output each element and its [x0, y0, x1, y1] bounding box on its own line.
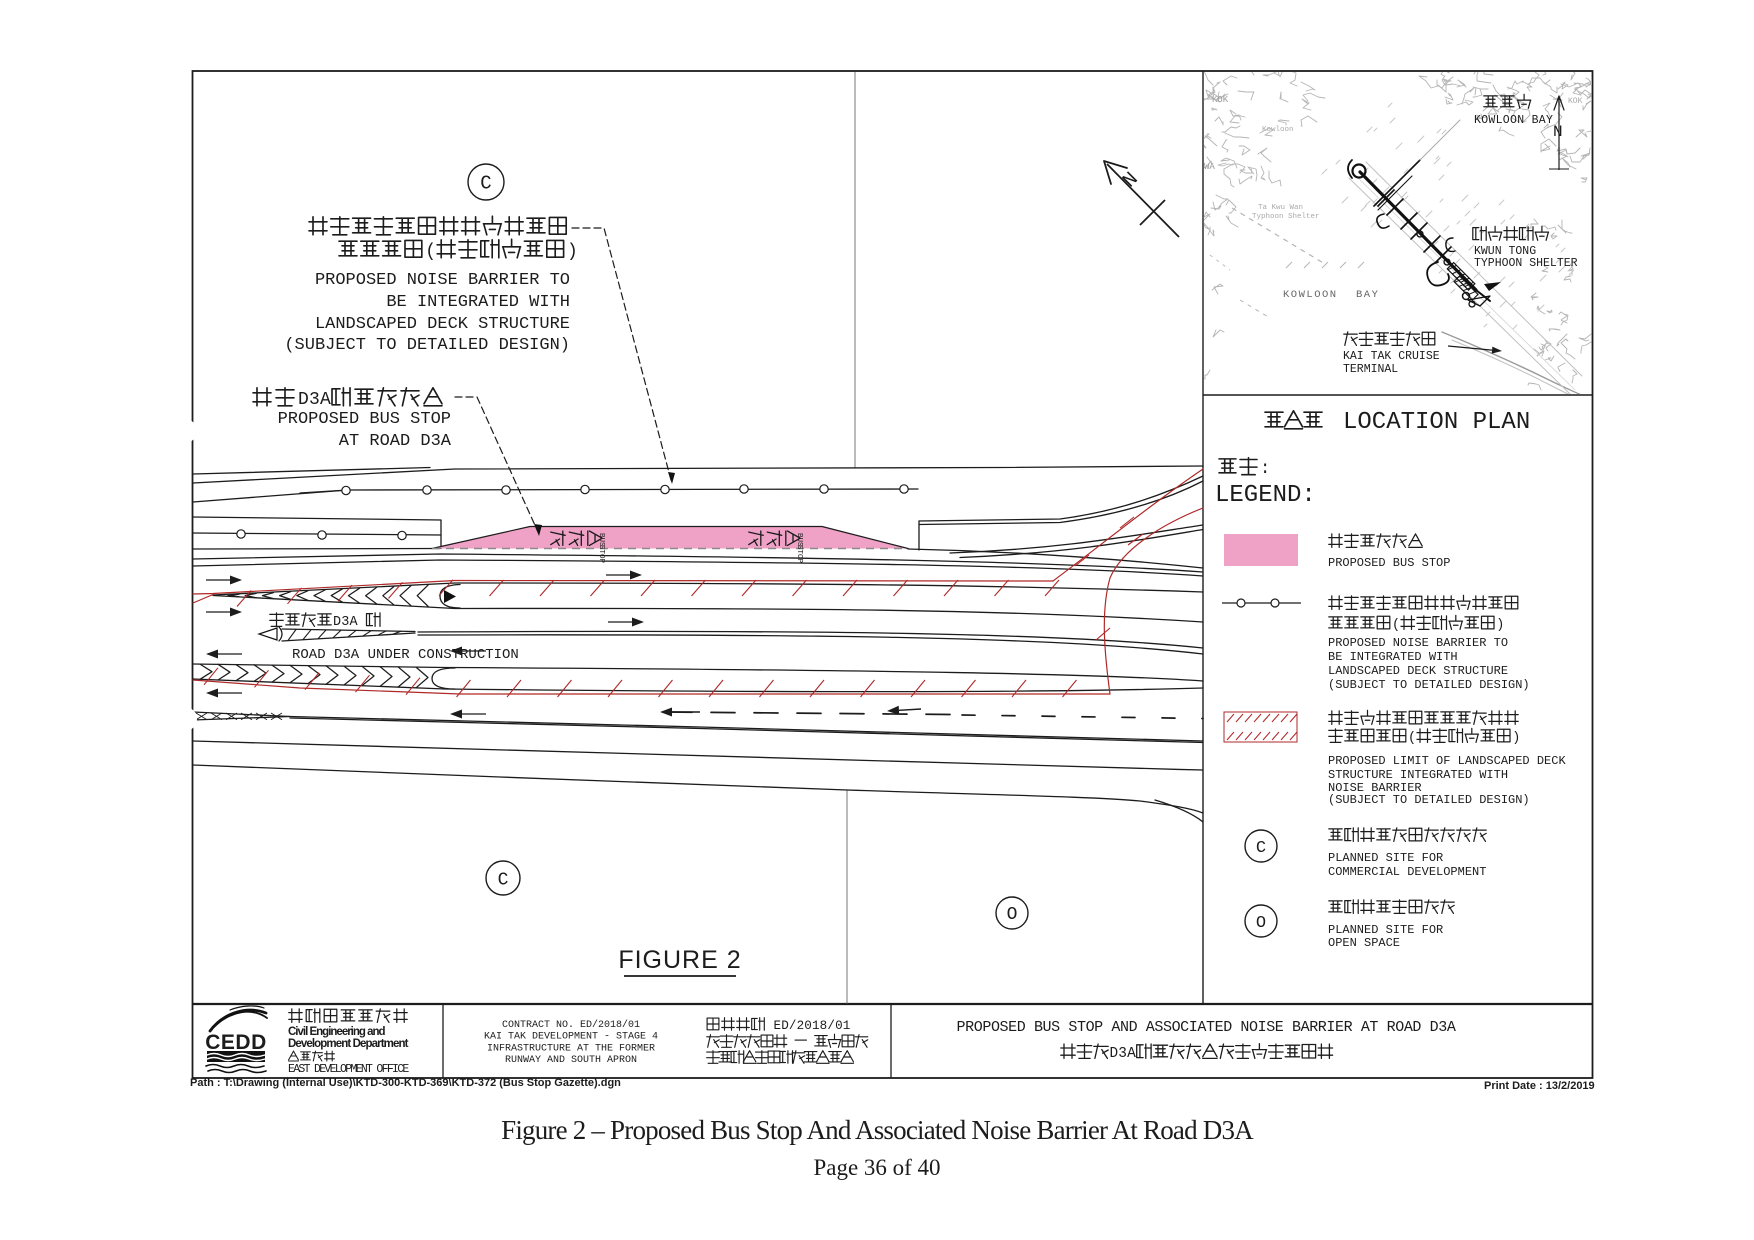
- svg-text:CONTRACT NO. ED/2018/01: CONTRACT NO. ED/2018/01: [502, 1019, 640, 1031]
- svg-text:KOK: KOK: [1212, 95, 1229, 105]
- svg-text:Kowloon: Kowloon: [1262, 126, 1294, 134]
- svg-text:STOP: STOP: [795, 545, 803, 564]
- svg-text:TYPHOON SHELTER: TYPHOON SHELTER: [1474, 257, 1578, 270]
- svg-text:): ): [1512, 731, 1520, 746]
- svg-text:PROPOSED BUS STOP: PROPOSED BUS STOP: [278, 410, 451, 429]
- svg-text:WA: WA: [1204, 162, 1215, 172]
- svg-text:KOWLOON BAY: KOWLOON BAY: [1474, 114, 1553, 127]
- svg-text:N: N: [1553, 123, 1563, 141]
- svg-text:PROPOSED BUS STOP: PROPOSED BUS STOP: [1328, 556, 1450, 570]
- svg-text:C: C: [1256, 839, 1266, 858]
- svg-text:Path : T:\Drawing (Internal Us: Path : T:\Drawing (Internal Use)\KTD-300…: [190, 1077, 621, 1089]
- svg-text:COMMERCIAL DEVELOPMENT: COMMERCIAL DEVELOPMENT: [1328, 865, 1486, 879]
- svg-text:(: (: [425, 242, 436, 262]
- svg-text:(: (: [1408, 731, 1416, 746]
- svg-text:N: N: [1119, 168, 1144, 193]
- svg-text:C: C: [480, 173, 491, 195]
- svg-text:): ): [567, 242, 578, 262]
- svg-text:(: (: [1392, 618, 1400, 633]
- svg-text:): ): [1496, 618, 1504, 633]
- svg-text:C: C: [498, 871, 509, 891]
- svg-text:LOCATION PLAN: LOCATION PLAN: [1343, 409, 1530, 436]
- svg-text:LANDSCAPED DECK STRUCTURE: LANDSCAPED DECK STRUCTURE: [1328, 664, 1508, 678]
- svg-text:(SUBJECT TO DETAILED DESIGN): (SUBJECT TO DETAILED DESIGN): [284, 336, 570, 355]
- svg-text:TERMINAL: TERMINAL: [1343, 363, 1398, 376]
- svg-text:(SUBJECT TO DETAILED DESIGN): (SUBJECT TO DETAILED DESIGN): [1328, 678, 1530, 692]
- svg-text:D3A: D3A: [298, 390, 331, 410]
- svg-text:LANDSCAPED DECK STRUCTURE: LANDSCAPED DECK STRUCTURE: [315, 315, 570, 334]
- svg-text:Print Date : 13/2/2019: Print Date : 13/2/2019: [1484, 1080, 1595, 1092]
- svg-text:O: O: [1256, 914, 1266, 933]
- svg-text:BAY: BAY: [1356, 289, 1379, 301]
- svg-text:PLANNED SITE FOR: PLANNED SITE FOR: [1328, 923, 1443, 937]
- svg-text:STOP: STOP: [597, 545, 605, 564]
- svg-text:BE INTEGRATED WITH: BE INTEGRATED WITH: [386, 293, 570, 312]
- svg-text:Development Department: Development Department: [288, 1038, 409, 1050]
- svg-text:STRUCTURE INTEGRATED WITH: STRUCTURE INTEGRATED WITH: [1328, 768, 1508, 782]
- svg-text:KOK: KOK: [1568, 97, 1583, 106]
- svg-text:PROPOSED NOISE BARRIER TO: PROPOSED NOISE BARRIER TO: [1328, 636, 1508, 650]
- svg-text:ED/2018/01: ED/2018/01: [774, 1019, 851, 1033]
- svg-text::: :: [1260, 460, 1270, 479]
- svg-text:CEDD: CEDD: [205, 1031, 267, 1054]
- svg-text:PLANNED SITE FOR: PLANNED SITE FOR: [1328, 851, 1443, 865]
- svg-text:LEGEND:: LEGEND:: [1215, 482, 1316, 509]
- svg-text:KAI TAK DEVELOPMENT - STAGE 4: KAI TAK DEVELOPMENT - STAGE 4: [484, 1032, 658, 1043]
- svg-text:PROPOSED NOISE BARRIER TO: PROPOSED NOISE BARRIER TO: [315, 271, 570, 290]
- svg-text:D3A: D3A: [1110, 1046, 1137, 1062]
- svg-text:PROPOSED BUS STOP AND ASSOCIAT: PROPOSED BUS STOP AND ASSOCIATED NOISE B…: [957, 1019, 1456, 1036]
- svg-text:(SUBJECT TO DETAILED DESIGN): (SUBJECT TO DETAILED DESIGN): [1328, 793, 1530, 807]
- svg-text:Civil Engineering and: Civil Engineering and: [288, 1026, 386, 1038]
- svg-text:OPEN SPACE: OPEN SPACE: [1328, 936, 1400, 950]
- svg-text:INFRASTRUCTURE AT THE FORMER: INFRASTRUCTURE AT THE FORMER: [487, 1043, 655, 1054]
- svg-text:D3A: D3A: [333, 615, 359, 630]
- svg-text:O: O: [1007, 905, 1018, 925]
- svg-text:BE INTEGRATED WITH: BE INTEGRATED WITH: [1328, 650, 1458, 664]
- svg-text:KOWLOON: KOWLOON: [1283, 289, 1338, 301]
- svg-text:Typhoon Shelter: Typhoon Shelter: [1252, 213, 1320, 221]
- svg-text:RUNWAY AND SOUTH APRON: RUNWAY AND SOUTH APRON: [505, 1055, 637, 1066]
- svg-text:EAST DEVELOPMENT OFFICE: EAST DEVELOPMENT OFFICE: [288, 1063, 409, 1076]
- svg-text:ROAD D3A UNDER CONSTRUCTION: ROAD D3A UNDER CONSTRUCTION: [292, 647, 519, 663]
- svg-text:Ta Kwu Wan: Ta Kwu Wan: [1258, 204, 1303, 212]
- svg-text:PROPOSED LIMIT OF LANDSCAPED D: PROPOSED LIMIT OF LANDSCAPED DECK: [1328, 754, 1566, 768]
- svg-text:FIGURE 2: FIGURE 2: [618, 946, 741, 974]
- svg-text:Page 36 of 40: Page 36 of 40: [813, 1155, 940, 1180]
- svg-text:Figure 2 – Proposed Bus Stop A: Figure 2 – Proposed Bus Stop And Associa…: [501, 1115, 1254, 1145]
- svg-text:KAI TAK CRUISE: KAI TAK CRUISE: [1343, 350, 1440, 363]
- svg-text:AT ROAD D3A: AT ROAD D3A: [339, 432, 452, 451]
